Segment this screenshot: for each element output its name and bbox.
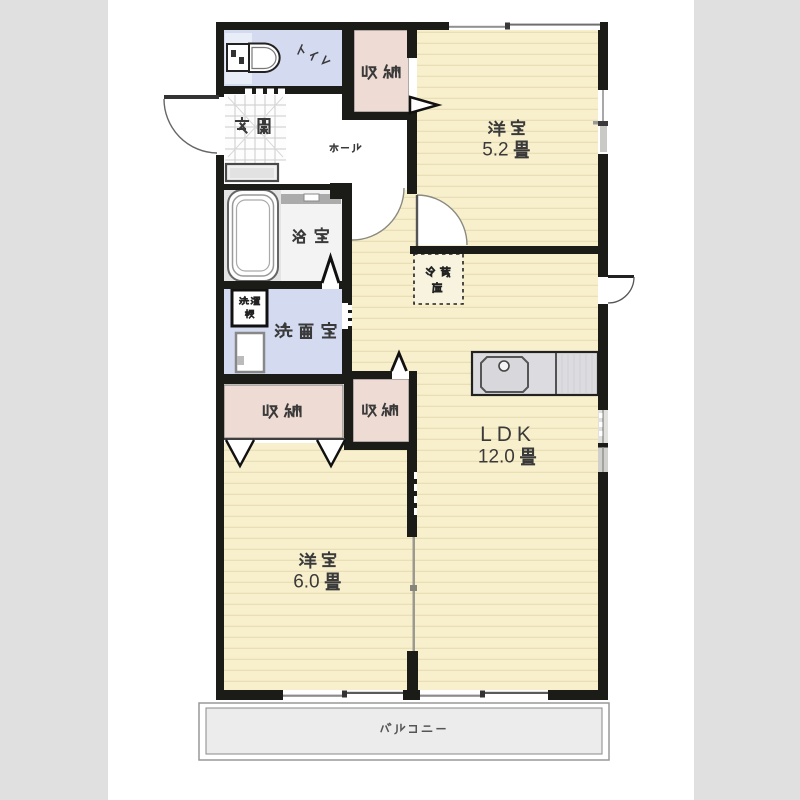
svg-text:12.0: 12.0 [478, 447, 515, 468]
svg-text:5.2: 5.2 [482, 140, 508, 161]
svg-text:LDK: LDK [480, 423, 536, 446]
svg-text:6.0: 6.0 [293, 572, 319, 593]
